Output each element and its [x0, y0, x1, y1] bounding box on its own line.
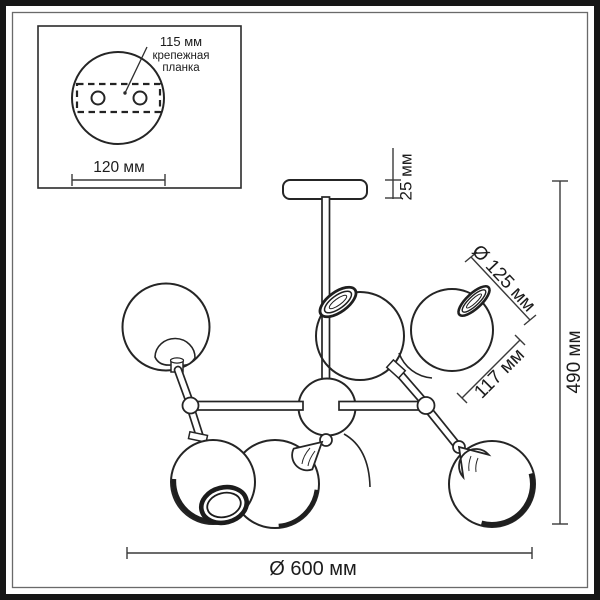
bracket-label-line2: планка [162, 62, 200, 74]
fitter-ring [171, 358, 184, 363]
ceiling-plate-circle [72, 52, 164, 144]
fixture-height-label: 490 мм [564, 330, 585, 393]
bracket-label-line1: крепежная [153, 50, 210, 62]
stem-rod [322, 197, 330, 384]
fixture-diameter-label: Ø 600 мм [269, 558, 357, 580]
plate-width-label: 120 мм [93, 159, 144, 176]
left-elbow-ball [183, 398, 199, 414]
right-elbow-ball [418, 397, 435, 414]
technical-drawing-svg: 115 мм крепежная планка 120 мм [0, 0, 600, 600]
ceiling-canopy [283, 180, 367, 199]
mounting-detail-inset: 115 мм крепежная планка 120 мм [38, 26, 241, 188]
canopy-height-label: 25 мм [396, 153, 415, 200]
hole-spacing-label: 115 мм [160, 34, 202, 49]
leader-dot [123, 91, 126, 94]
right-horizontal-arm [339, 402, 429, 411]
product-dimension-drawing: 115 мм крепежная планка 120 мм [0, 0, 600, 600]
left-horizontal-arm [196, 402, 303, 411]
